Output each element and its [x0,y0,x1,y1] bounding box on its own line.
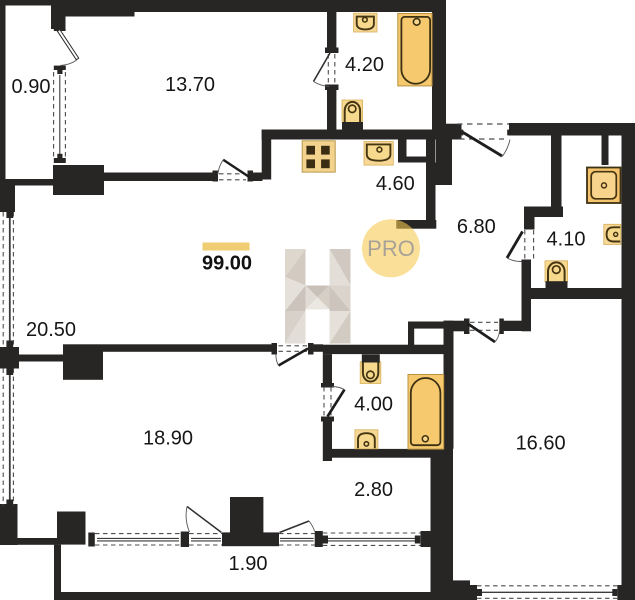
svg-text:2.80: 2.80 [354,479,393,501]
svg-text:0.90: 0.90 [12,76,51,98]
svg-text:18.90: 18.90 [143,428,193,450]
svg-text:16.60: 16.60 [516,433,566,455]
svg-text:6.80: 6.80 [457,216,496,238]
svg-text:20.50: 20.50 [26,319,76,341]
svg-text:99.00: 99.00 [202,253,252,275]
svg-text:PRO: PRO [367,236,415,261]
svg-text:4.60: 4.60 [376,173,415,195]
svg-text:1.90: 1.90 [229,553,268,575]
svg-text:4.20: 4.20 [345,54,384,76]
svg-text:4.10: 4.10 [547,229,586,251]
svg-text:4.00: 4.00 [354,393,393,415]
svg-text:13.70: 13.70 [165,74,215,96]
